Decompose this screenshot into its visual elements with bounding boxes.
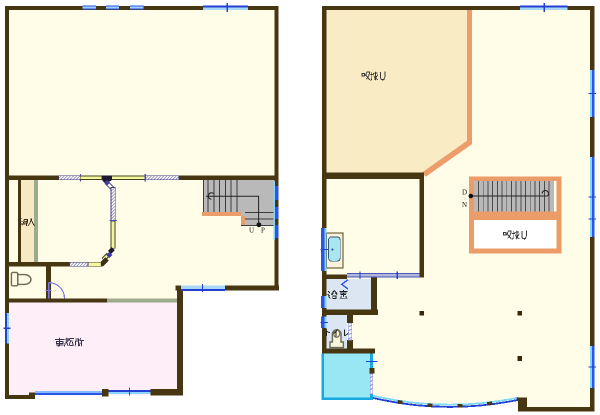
svg-text:P: P — [261, 226, 265, 234]
svg-text:N: N — [462, 201, 467, 209]
svg-text:U: U — [249, 226, 254, 234]
svg-text:D: D — [462, 189, 467, 197]
